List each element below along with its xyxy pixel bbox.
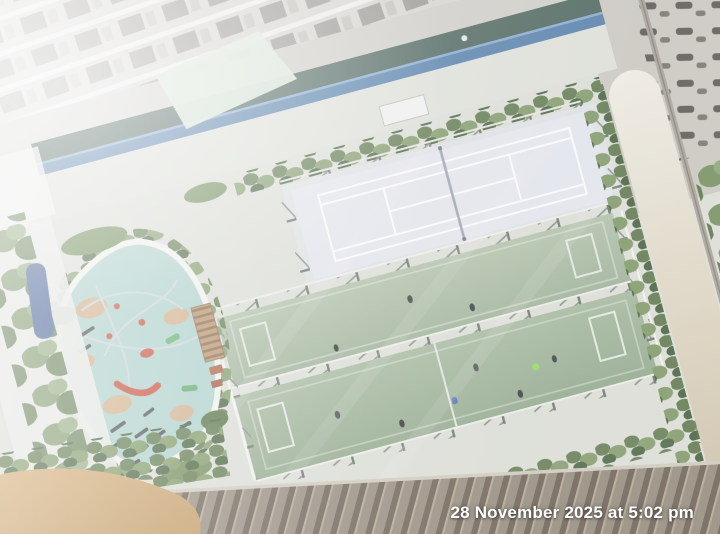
timestamp-overlay: 28 November 2025 at 5:02 pm (450, 503, 694, 523)
scene-deck (0, 0, 720, 534)
aerial-photo: 28 November 2025 at 5:02 pm (0, 0, 720, 534)
